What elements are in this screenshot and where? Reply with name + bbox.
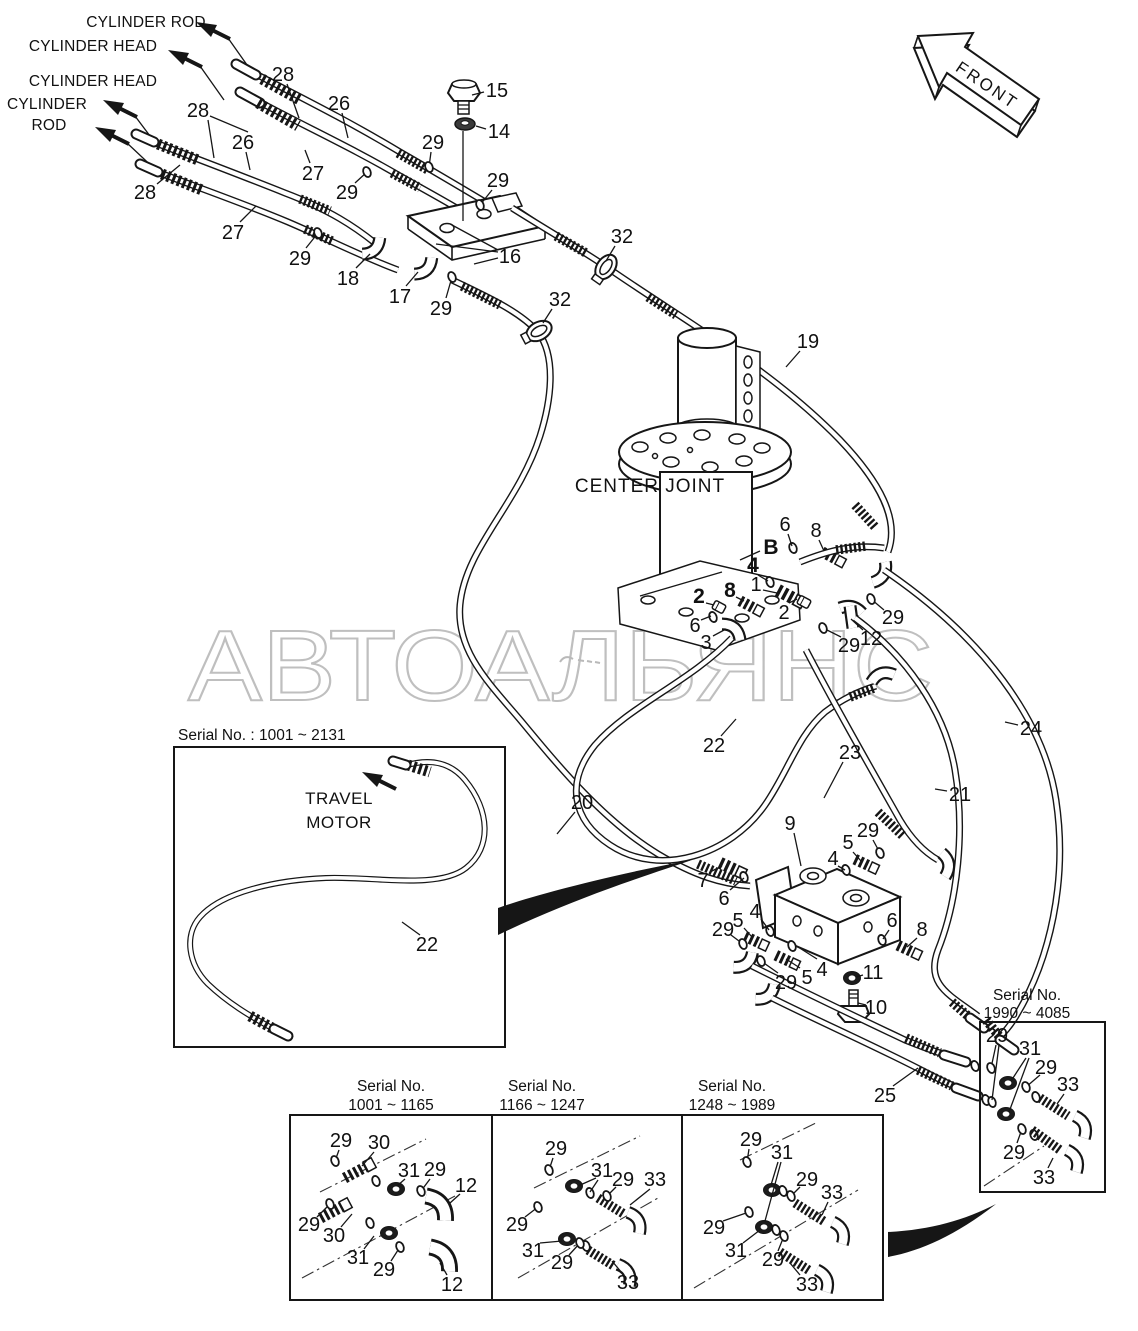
oring-29 xyxy=(866,593,877,605)
cylinder-head-label-1: CYLINDER HEAD xyxy=(29,38,157,55)
leader-line xyxy=(210,116,248,132)
part-callout-28: 28 xyxy=(134,182,156,204)
part-callout-29: 29 xyxy=(430,298,452,320)
part-callout-29: 29 xyxy=(551,1252,573,1274)
oring-29 xyxy=(779,1230,790,1242)
part-callout-5: 5 xyxy=(842,832,853,854)
leader-line xyxy=(557,812,575,834)
part-callout-33: 33 xyxy=(617,1272,639,1294)
oring-29 xyxy=(986,1062,997,1074)
leader-line xyxy=(474,258,498,264)
serial-box-4-title-2: 1990 ~ 4085 xyxy=(984,1005,1071,1022)
serial-box-2-title-2: 1166 ~ 1247 xyxy=(499,1097,584,1114)
serial-box-3-title-2: 1248 ~ 1989 xyxy=(689,1097,776,1114)
part-callout-29: 29 xyxy=(703,1217,725,1239)
cylinder-head-arrow-1 xyxy=(168,50,224,100)
part-callout-29: 29 xyxy=(545,1138,567,1160)
part-callout-6: 6 xyxy=(689,615,700,637)
part-callout-14: 14 xyxy=(488,121,510,143)
leader-line xyxy=(893,1068,918,1086)
part-callout-8: 8 xyxy=(724,579,736,602)
part-callout-9: 9 xyxy=(784,813,795,835)
serial-box-4: Serial No. 1990 ~ 4085 xyxy=(980,987,1105,1192)
washer-14 xyxy=(455,118,475,130)
part-callout-24: 24 xyxy=(1020,718,1042,740)
part-callout-22: 22 xyxy=(416,934,438,956)
part-callout-20: 20 xyxy=(571,792,593,814)
part-callout-29: 29 xyxy=(796,1169,818,1191)
part-callout-29: 29 xyxy=(762,1249,784,1271)
part-callout-18: 18 xyxy=(337,268,359,290)
travel-inset-title: Serial No. : 1001 ~ 2131 xyxy=(178,727,346,744)
part-callout-12: 12 xyxy=(455,1175,477,1197)
part-callout-5: 5 xyxy=(732,910,743,932)
oring-29 xyxy=(1017,1123,1028,1135)
part-callout-4: 4 xyxy=(827,848,838,870)
part-callout-29: 29 xyxy=(712,919,734,941)
part-callout-29: 29 xyxy=(298,1214,320,1236)
oring-29 xyxy=(738,938,749,950)
part-callout-4: 4 xyxy=(749,901,760,923)
leader-line xyxy=(794,833,801,866)
part-callout-29: 29 xyxy=(422,132,444,154)
oring-29 xyxy=(742,1156,753,1168)
part-callout-29: 29 xyxy=(289,248,311,270)
swoosh-arrow-2 xyxy=(888,1204,996,1257)
travel-motor-inset: Serial No. : 1001 ~ 2131 TRAVEL MOTOR xyxy=(174,727,505,1047)
leader-line xyxy=(246,152,250,170)
part-callout-26: 26 xyxy=(232,132,254,154)
part-callout-29: 29 xyxy=(1003,1142,1025,1164)
part-callout-3: 3 xyxy=(700,632,711,654)
travel-motor-label-2: MOTOR xyxy=(306,813,371,832)
cylinder-rod-label-2b: ROD xyxy=(31,117,66,134)
part-callout-29: 29 xyxy=(882,607,904,629)
part-callout-29: 29 xyxy=(1035,1057,1057,1079)
oring-29 xyxy=(395,1241,406,1253)
serial-box-1-title-1: Serial No. xyxy=(357,1078,425,1095)
part-callout-12: 12 xyxy=(860,628,882,650)
part-callout-29: 29 xyxy=(506,1214,528,1236)
part-callout-15: 15 xyxy=(486,80,508,102)
travel-motor-arrow xyxy=(362,772,396,789)
part-callout-31: 31 xyxy=(591,1160,613,1182)
part-callout-23: 23 xyxy=(839,742,861,764)
part-callout-32: 32 xyxy=(611,226,633,248)
part-callout-27: 27 xyxy=(302,163,324,185)
part-callout-8: 8 xyxy=(810,520,821,542)
part-callout-33: 33 xyxy=(1033,1167,1055,1189)
part-callout-1: 1 xyxy=(750,574,761,596)
center-joint-label: CENTER JOINT xyxy=(575,476,725,497)
leader-line xyxy=(1011,1058,1026,1081)
part-callout-6: 6 xyxy=(886,910,897,932)
part-callout-2: 2 xyxy=(778,602,789,624)
oring-29 xyxy=(544,1164,555,1176)
front-direction-arrow: FRONT xyxy=(914,33,1039,137)
leader-line xyxy=(1005,722,1018,725)
leader-line xyxy=(771,1162,778,1185)
part-callout-11: 11 xyxy=(863,962,884,984)
serial-box-1-title-2: 1001 ~ 1165 xyxy=(348,1097,433,1114)
valve-block-9 xyxy=(756,867,900,964)
diagram-canvas: АВТОАЛЬЯНС FRONT xyxy=(0,0,1138,1331)
oring-29 xyxy=(533,1201,544,1213)
part-callout-29: 29 xyxy=(612,1169,634,1191)
part-callout-33: 33 xyxy=(1057,1074,1079,1096)
part-callout-29: 29 xyxy=(838,635,860,657)
part-callout-22: 22 xyxy=(703,735,725,757)
part-callout-31: 31 xyxy=(522,1240,544,1262)
part-callout-30: 30 xyxy=(323,1225,345,1247)
oring-29 xyxy=(1021,1081,1032,1093)
part-callout-4: 4 xyxy=(816,959,827,981)
part-callout-6: 6 xyxy=(779,514,790,536)
part-callout-8: 8 xyxy=(916,919,927,941)
part-callout-33: 33 xyxy=(796,1274,818,1296)
leader-line xyxy=(476,126,486,129)
part-callout-19: 19 xyxy=(797,331,819,353)
leader-line xyxy=(786,351,800,367)
part-callout-29: 29 xyxy=(775,972,797,994)
part-callout-28: 28 xyxy=(187,100,209,122)
parts-diagram-page: АВТОАЛЬЯНС FRONT xyxy=(0,0,1138,1331)
oring-29 xyxy=(875,847,886,859)
serial-box-4-title-1: Serial No. xyxy=(993,987,1061,1004)
part-callout-32: 32 xyxy=(549,289,571,311)
leader-line xyxy=(630,1189,650,1205)
part-callout-29: 29 xyxy=(857,820,879,842)
part-callout-29: 29 xyxy=(373,1259,395,1281)
part-callout-21: 21 xyxy=(949,784,971,806)
part-callout-29: 29 xyxy=(487,170,509,192)
part-callout-B: B xyxy=(763,536,778,559)
part-callout-12: 12 xyxy=(441,1274,463,1296)
part-callout-29: 29 xyxy=(330,1130,352,1152)
part-callout-26: 26 xyxy=(328,93,350,115)
part-callout-31: 31 xyxy=(725,1240,747,1262)
oring-29 xyxy=(447,271,458,283)
part-callout-33: 33 xyxy=(821,1182,843,1204)
part-callout-29: 29 xyxy=(424,1159,446,1181)
part-callout-33: 33 xyxy=(644,1169,666,1191)
swoosh-arrow-1 xyxy=(498,860,692,935)
part-callout-25: 25 xyxy=(874,1085,896,1107)
part-callout-29: 29 xyxy=(336,182,358,204)
part-callout-31: 31 xyxy=(771,1142,793,1164)
part-callout-29: 29 xyxy=(740,1129,762,1151)
nut-11 xyxy=(844,972,861,985)
part-callout-10: 10 xyxy=(865,997,887,1019)
part-callout-30: 30 xyxy=(368,1132,390,1154)
cylinder-rod-label-1: CYLINDER ROD xyxy=(86,14,206,31)
part-callout-31: 31 xyxy=(398,1160,420,1182)
oring-29 xyxy=(744,1206,755,1218)
part-callout-2: 2 xyxy=(693,585,705,608)
oring-29 xyxy=(362,166,373,178)
part-callout-28: 28 xyxy=(272,64,294,86)
travel-motor-label-1: TRAVEL xyxy=(305,789,373,808)
part-callout-29: 29 xyxy=(986,1025,1008,1047)
part-callout-31: 31 xyxy=(347,1247,369,1269)
leader-line xyxy=(305,150,310,163)
cylinder-head-label-2: CYLINDER HEAD xyxy=(29,73,157,90)
leader-line xyxy=(824,762,843,798)
part-callout-27: 27 xyxy=(222,222,244,244)
cylinder-rod-label-2a: CYLINDER xyxy=(7,96,87,113)
part-callout-17: 17 xyxy=(389,286,411,308)
serial-box-3-title-1: Serial No. xyxy=(698,1078,766,1095)
serial-box-2-title-1: Serial No. xyxy=(508,1078,576,1095)
oring-29 xyxy=(330,1155,341,1167)
part-callout-16: 16 xyxy=(499,246,521,268)
part-callout-6: 6 xyxy=(718,888,729,910)
part-callout-5: 5 xyxy=(801,967,812,989)
leader-line xyxy=(935,789,947,791)
part-callout-7: 7 xyxy=(697,870,708,892)
leader-line xyxy=(208,120,214,158)
